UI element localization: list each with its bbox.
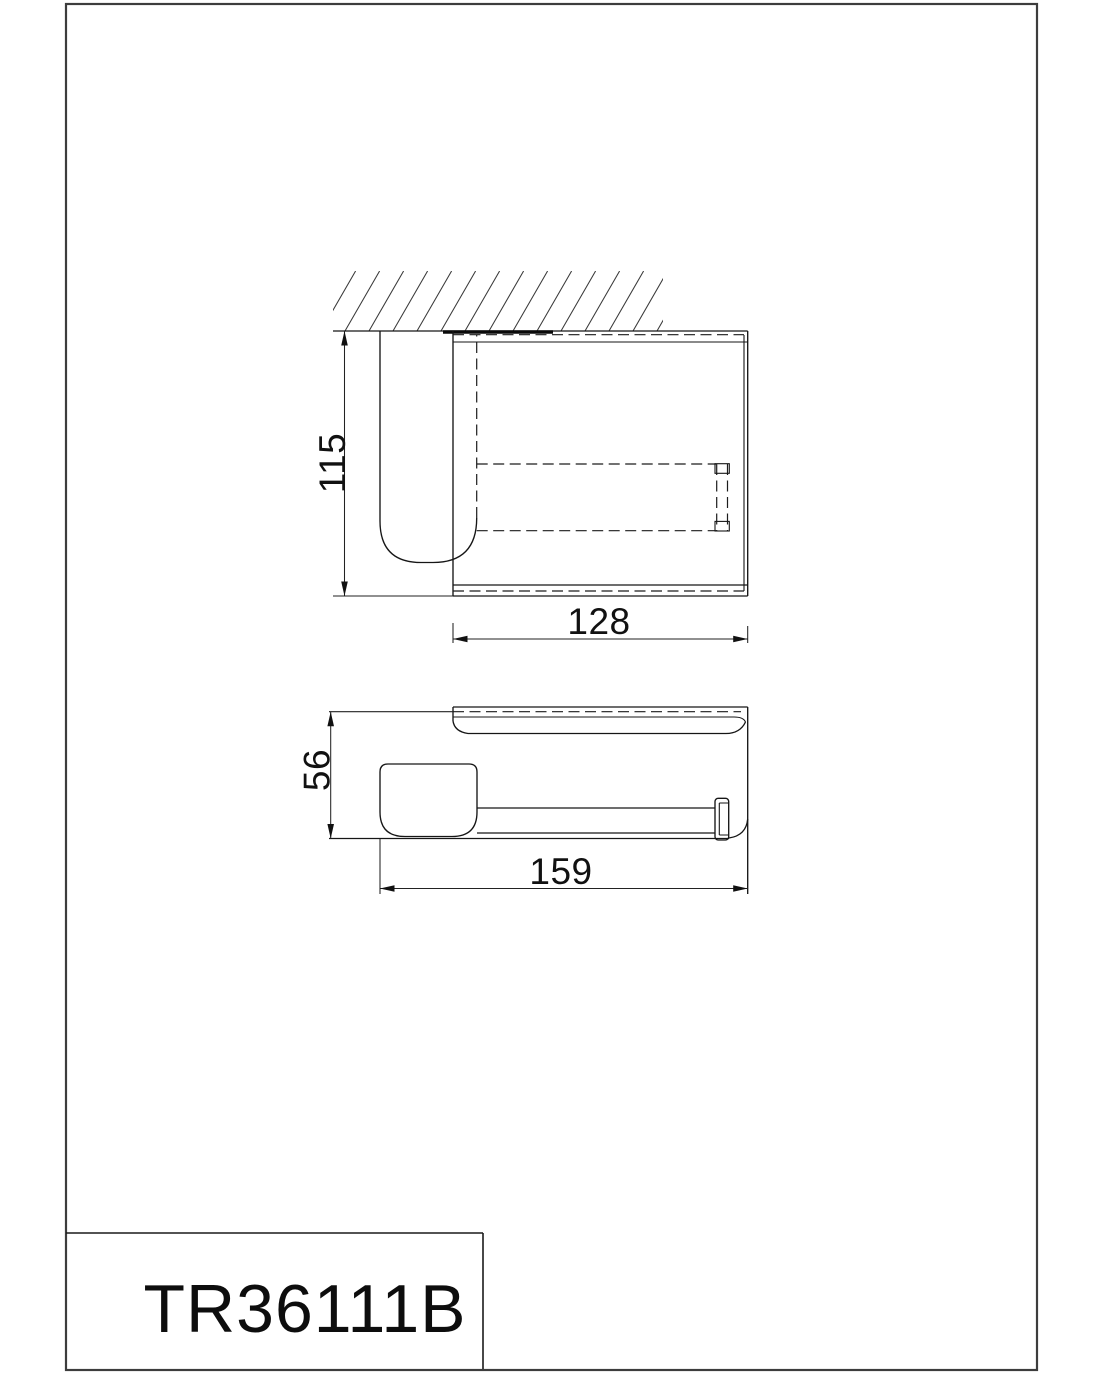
shelf-inner-back-line — [453, 717, 746, 722]
roll-bar-end-cap — [715, 798, 729, 840]
dim-56-arrow-down — [327, 824, 334, 839]
dim-115-arrow-down — [341, 582, 348, 597]
dim-width-top-label: 159 — [529, 851, 592, 892]
dim-159-arrow-right — [733, 885, 748, 892]
dim-56-arrow-up — [327, 712, 334, 727]
dim-height-label: 115 — [312, 433, 353, 494]
drawing-sheet: 115 128 — [0, 0, 1100, 1375]
dim-128-arrow-left — [453, 636, 468, 643]
dim-128-arrow-right — [733, 636, 748, 643]
dimension-width-128: 128 — [453, 601, 748, 643]
dimension-height-115: 115 — [312, 331, 453, 596]
page-border — [66, 4, 1037, 1370]
dim-115-arrow-up — [341, 331, 348, 346]
mount-bracket-outline — [380, 331, 477, 563]
front-view: 115 128 — [312, 271, 748, 643]
wall-hatch-pattern — [321, 271, 692, 331]
dim-159-arrow-left — [380, 885, 395, 892]
housing-front-right-corner — [729, 819, 748, 838]
mount-block-outline — [380, 764, 477, 837]
dim-width-front-label: 128 — [567, 601, 630, 642]
roll-bar-end-cap-detail — [719, 803, 728, 835]
dimension-width-159: 159 — [380, 839, 748, 894]
dim-depth-label: 56 — [297, 749, 338, 791]
top-view: 56 159 — [297, 707, 748, 894]
product-code: TR36111B — [144, 1271, 467, 1347]
dimension-depth-56: 56 — [297, 712, 454, 839]
shelf-front-edge — [453, 721, 746, 734]
technical-drawing-canvas: 115 128 — [0, 0, 1100, 1375]
title-block: TR36111B — [66, 1233, 483, 1369]
